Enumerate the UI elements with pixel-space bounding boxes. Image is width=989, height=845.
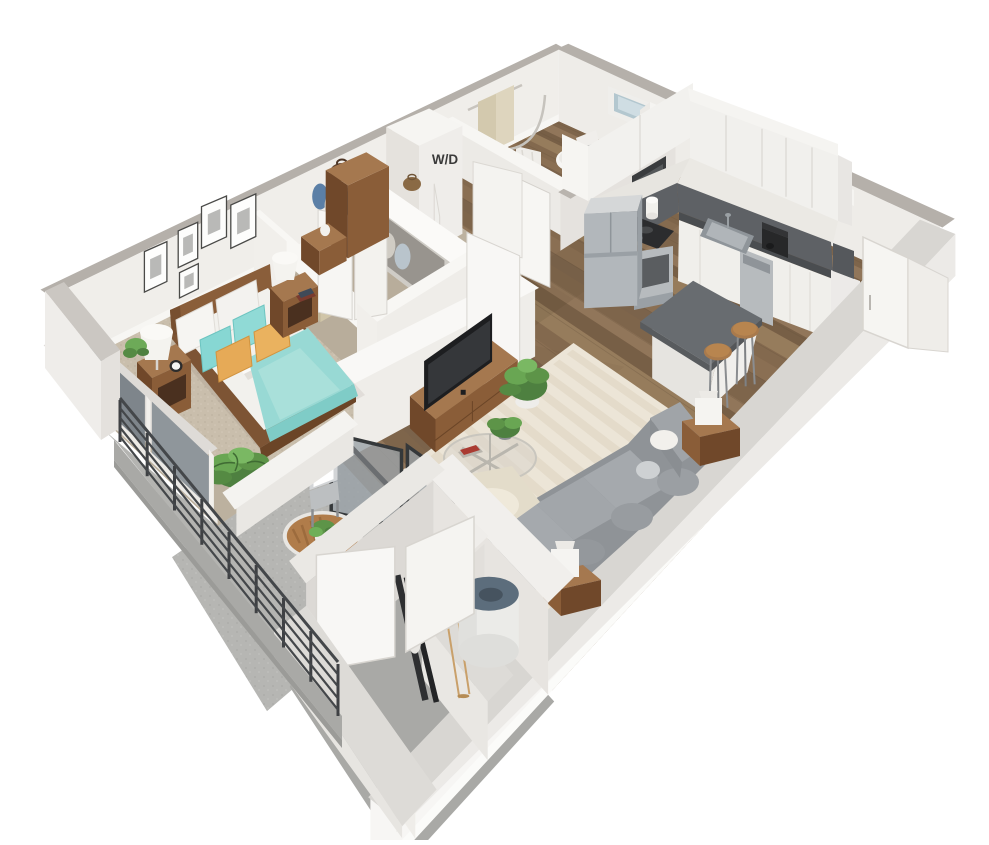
svg-text:W/D: W/D [432,152,458,167]
